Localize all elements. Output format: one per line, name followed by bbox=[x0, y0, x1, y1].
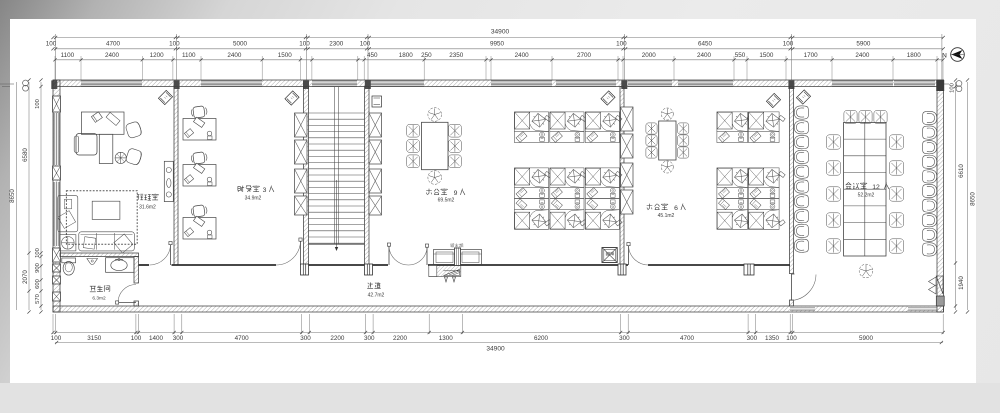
svg-text:1500: 1500 bbox=[278, 52, 293, 59]
svg-text:1500: 1500 bbox=[759, 52, 774, 59]
svg-text:2000: 2000 bbox=[642, 52, 657, 59]
svg-text:6610: 6610 bbox=[958, 164, 965, 178]
svg-text:69.5m2: 69.5m2 bbox=[438, 198, 455, 204]
svg-text:2400: 2400 bbox=[515, 52, 530, 59]
svg-text:100: 100 bbox=[51, 335, 62, 342]
svg-text:100: 100 bbox=[169, 41, 180, 48]
svg-text:N: N bbox=[942, 53, 947, 60]
svg-text:5900: 5900 bbox=[859, 335, 874, 342]
svg-text:42.7m2: 42.7m2 bbox=[368, 293, 385, 299]
svg-text:34.9m2: 34.9m2 bbox=[245, 196, 262, 202]
svg-text:300: 300 bbox=[619, 335, 630, 342]
svg-text:34900: 34900 bbox=[491, 29, 510, 36]
svg-text:6200: 6200 bbox=[534, 335, 549, 342]
svg-text:3150: 3150 bbox=[87, 335, 102, 342]
svg-text:2300: 2300 bbox=[329, 41, 344, 48]
svg-text:2350: 2350 bbox=[449, 52, 464, 59]
svg-text:550: 550 bbox=[735, 52, 746, 59]
svg-text:600: 600 bbox=[35, 279, 41, 289]
svg-text:1300: 1300 bbox=[439, 335, 454, 342]
svg-text:2400: 2400 bbox=[855, 52, 870, 59]
svg-text:2700: 2700 bbox=[577, 52, 592, 59]
svg-text:100: 100 bbox=[35, 248, 41, 258]
svg-text:31.6m2: 31.6m2 bbox=[139, 205, 156, 211]
svg-text:100: 100 bbox=[299, 41, 310, 48]
svg-text:100: 100 bbox=[950, 83, 956, 93]
svg-text:8650: 8650 bbox=[9, 189, 16, 203]
svg-text:100: 100 bbox=[46, 41, 57, 48]
svg-text:1100: 1100 bbox=[61, 52, 75, 59]
svg-text:1800: 1800 bbox=[399, 52, 414, 59]
svg-text:570: 570 bbox=[35, 294, 41, 304]
svg-text:4700: 4700 bbox=[680, 335, 695, 342]
svg-text:2200: 2200 bbox=[330, 335, 345, 342]
svg-text:2400: 2400 bbox=[697, 52, 712, 59]
svg-text:1940: 1940 bbox=[958, 276, 965, 290]
svg-text:4700: 4700 bbox=[235, 335, 250, 342]
svg-text:1200: 1200 bbox=[150, 52, 165, 59]
svg-text:2400: 2400 bbox=[227, 52, 242, 59]
svg-text:300: 300 bbox=[300, 335, 311, 342]
svg-text:6: 6 bbox=[674, 205, 678, 212]
svg-text:1700: 1700 bbox=[804, 52, 819, 59]
svg-text:6.3m2: 6.3m2 bbox=[92, 296, 106, 302]
svg-text:5000: 5000 bbox=[233, 41, 248, 48]
svg-text:1400: 1400 bbox=[149, 335, 164, 342]
svg-text:2200: 2200 bbox=[393, 335, 408, 342]
svg-text:2070: 2070 bbox=[22, 270, 29, 284]
svg-text:450: 450 bbox=[367, 52, 378, 59]
svg-text:300: 300 bbox=[173, 335, 184, 342]
svg-text:100: 100 bbox=[786, 335, 797, 342]
svg-text:300: 300 bbox=[364, 335, 375, 342]
svg-text:8650: 8650 bbox=[970, 192, 977, 206]
svg-text:250: 250 bbox=[421, 52, 432, 59]
svg-text:9950: 9950 bbox=[490, 41, 505, 48]
svg-text:45.1m2: 45.1m2 bbox=[658, 213, 675, 219]
svg-text:52.2m2: 52.2m2 bbox=[858, 193, 875, 199]
svg-text:5900: 5900 bbox=[856, 41, 871, 48]
svg-text:100: 100 bbox=[783, 41, 794, 48]
svg-text:6580: 6580 bbox=[22, 148, 29, 162]
svg-text:900: 900 bbox=[35, 263, 41, 273]
svg-text:100: 100 bbox=[35, 99, 41, 109]
svg-text:100: 100 bbox=[131, 335, 142, 342]
svg-text:2400: 2400 bbox=[105, 52, 120, 59]
svg-text:3: 3 bbox=[263, 187, 267, 194]
svg-text:4700: 4700 bbox=[106, 41, 121, 48]
svg-text:1100: 1100 bbox=[182, 52, 196, 59]
svg-text:6450: 6450 bbox=[698, 41, 713, 48]
svg-text:34900: 34900 bbox=[486, 346, 505, 353]
svg-text:100: 100 bbox=[616, 41, 627, 48]
svg-text:9: 9 bbox=[454, 190, 458, 197]
svg-text:12: 12 bbox=[872, 184, 880, 191]
svg-text:1350: 1350 bbox=[765, 335, 780, 342]
svg-text:1800: 1800 bbox=[907, 52, 922, 59]
svg-text:300: 300 bbox=[747, 335, 758, 342]
svg-text:100: 100 bbox=[360, 41, 371, 48]
